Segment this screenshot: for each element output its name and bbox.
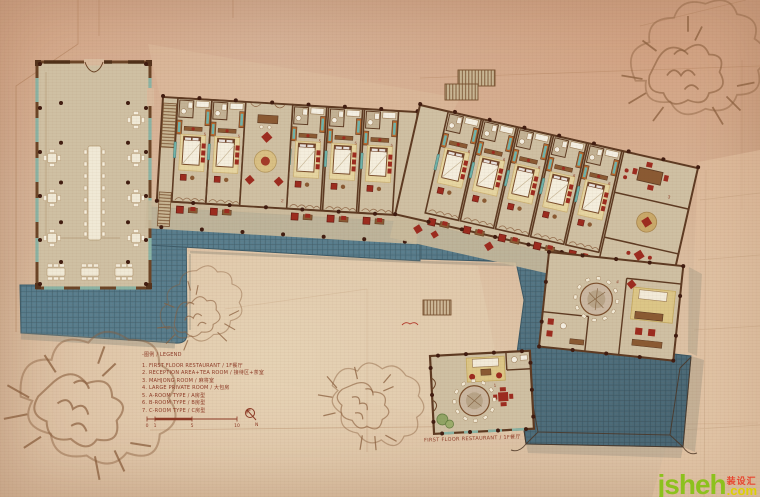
watermark-tld: .com — [727, 485, 757, 497]
private-dining-block: 4 — [537, 250, 686, 363]
site-plan-canvas: 5 5 5 — [0, 0, 760, 497]
tree-sketch — [622, 0, 760, 124]
svg-text:0: 0 — [146, 423, 149, 429]
scale-bar: 0 1 5 10 — [146, 417, 240, 430]
stair-west-upper — [161, 103, 177, 148]
legend-item: 3. MAHJONG ROOM / 麻将室 — [142, 378, 264, 386]
legend-item: 4. LARGE PRIVATE ROOM / 大包房 — [142, 385, 264, 393]
table-6 — [47, 264, 65, 280]
banquet-hall — [35, 59, 154, 289]
site-plan-svg: 5 5 5 — [0, 0, 760, 497]
watermark-brand: jsheh — [658, 472, 726, 497]
restaurant-lounge — [466, 356, 505, 382]
table-6 — [115, 264, 133, 280]
stair-west-lower — [157, 192, 171, 227]
legend-item: 6. B-ROOM TYPE / B房型 — [142, 400, 264, 408]
svg-text:10: 10 — [234, 423, 240, 429]
legend-item: 2. RECEPTION AREA+TEA ROOM / 接待区+茶室 — [142, 370, 264, 378]
legend-header: -图例 / LEGEND — [142, 352, 264, 360]
svg-text:N: N — [255, 422, 258, 428]
legend-item: 7. C-ROOM TYPE / C房型 — [142, 408, 264, 416]
legend-item: 5. A-ROOM TYPE / A房型 — [142, 393, 264, 401]
detached-restaurant: 1 — [428, 349, 536, 436]
table-6 — [81, 264, 99, 280]
watermark: jsheh 装设汇 .com — [658, 472, 757, 497]
legend-item: 1. FIRST FLOOR RESTAURANT / 1F餐厅 — [142, 363, 264, 371]
west-guest-wing: 5 5 5 — [145, 93, 425, 244]
reception-tea-lounge: 2 — [240, 102, 293, 209]
hall-entrance — [84, 59, 104, 66]
legend: -图例 / LEGEND 1. FIRST FLOOR RESTAURANT /… — [142, 352, 264, 415]
svg-text:5: 5 — [191, 423, 194, 429]
svg-text:1: 1 — [154, 423, 157, 429]
